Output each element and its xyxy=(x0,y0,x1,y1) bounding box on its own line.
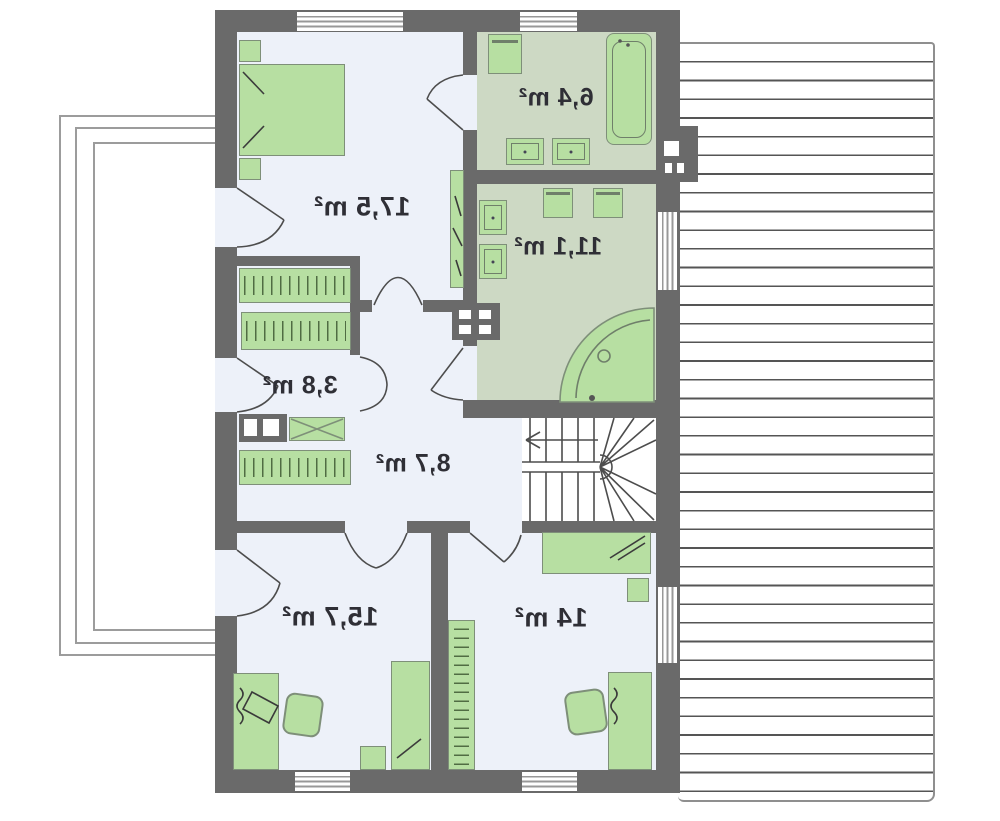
nightstand xyxy=(239,158,261,180)
roof-area xyxy=(678,42,935,802)
double-bed xyxy=(239,64,345,156)
wall-bathrooms-divider xyxy=(463,170,656,184)
toilet-tank xyxy=(546,192,570,195)
room-label-hall: 8,7 m² xyxy=(375,450,450,479)
room-label-closet: 3,8 m² xyxy=(262,372,337,401)
chimney-flue xyxy=(479,310,491,319)
hanger-marks xyxy=(454,625,469,764)
door-gap-bathroom-large xyxy=(463,346,477,400)
chimney-flue xyxy=(664,141,679,156)
sink-drain xyxy=(492,260,495,263)
nightstand xyxy=(627,578,649,602)
wall-bedrooms-divider xyxy=(431,521,448,770)
sink-drain xyxy=(570,150,573,153)
wall-stairwell-top xyxy=(463,400,656,418)
chimney-block-right xyxy=(656,126,698,182)
sink-drain xyxy=(492,216,495,219)
single-bed xyxy=(391,661,430,770)
hanger-marks xyxy=(244,458,345,477)
chimney-flue xyxy=(665,163,672,173)
door-gap-balcony-closet xyxy=(215,358,237,412)
bidet xyxy=(593,188,623,218)
room-label-bathroom-small: 6,4 m² xyxy=(518,84,593,113)
wardrobe xyxy=(241,312,351,350)
chimney-flue xyxy=(479,325,491,334)
wardrobe xyxy=(448,620,475,770)
wardrobe xyxy=(239,450,351,485)
room-label-bedroom-bl: 15,7 m² xyxy=(282,602,379,633)
shelf-unit xyxy=(289,417,345,441)
wall-bedroom-hall-a xyxy=(350,300,372,312)
balcony-outline-inner xyxy=(93,142,217,631)
toilet xyxy=(543,188,573,218)
window-top-2 xyxy=(520,12,577,31)
room-label-bathroom-large: 11,1 m² xyxy=(514,233,602,262)
washer-front xyxy=(244,419,257,436)
window-bottom-1 xyxy=(295,772,350,791)
window-right-1 xyxy=(658,212,677,290)
desk xyxy=(233,673,279,770)
hanger-marks xyxy=(246,321,345,341)
dryer-front xyxy=(263,419,279,436)
wall-hall-bottom-left xyxy=(237,521,345,533)
wardrobe-slim xyxy=(450,170,464,288)
stairwell-floor xyxy=(522,418,656,521)
wardrobe xyxy=(239,268,351,303)
desk-chair xyxy=(563,687,609,736)
door-gap-balcony-bedroom-bl xyxy=(215,550,237,616)
single-bed xyxy=(542,532,651,574)
sink xyxy=(506,138,544,165)
washing-machine xyxy=(488,34,522,74)
washer-dryer-unit xyxy=(239,414,287,442)
desk xyxy=(608,672,652,770)
room-label-bedroom-br: 14 m² xyxy=(514,603,587,634)
sink-drain xyxy=(524,150,527,153)
window-top-1 xyxy=(297,12,403,31)
door-gap-balcony-bedroom-top xyxy=(215,188,237,247)
desk-chair xyxy=(281,692,324,739)
bidet-back xyxy=(596,192,620,195)
bathtub-basin xyxy=(612,41,646,138)
wall-closet-top xyxy=(237,256,360,266)
room-label-bedroom-top: 17,5 m² xyxy=(314,192,411,223)
window-right-2 xyxy=(658,587,677,663)
door-gap-bathroom-small xyxy=(463,75,477,130)
nightstand xyxy=(360,746,386,770)
sink xyxy=(479,200,507,235)
sink xyxy=(552,138,590,165)
floor-plan: 17,5 m² 6,4 m² 11,1 m² 3,8 m² 8,7 m² 15,… xyxy=(0,0,1000,821)
sink xyxy=(479,244,507,279)
hanger-marks xyxy=(244,276,345,295)
chimney-flue xyxy=(459,325,471,334)
washer-panel xyxy=(492,40,519,43)
chimney-flue xyxy=(677,163,684,173)
chimney-block-center xyxy=(452,303,500,340)
window-bottom-2 xyxy=(522,772,577,791)
nightstand xyxy=(239,40,261,62)
bathtub xyxy=(606,33,652,145)
chimney-flue xyxy=(459,310,471,319)
